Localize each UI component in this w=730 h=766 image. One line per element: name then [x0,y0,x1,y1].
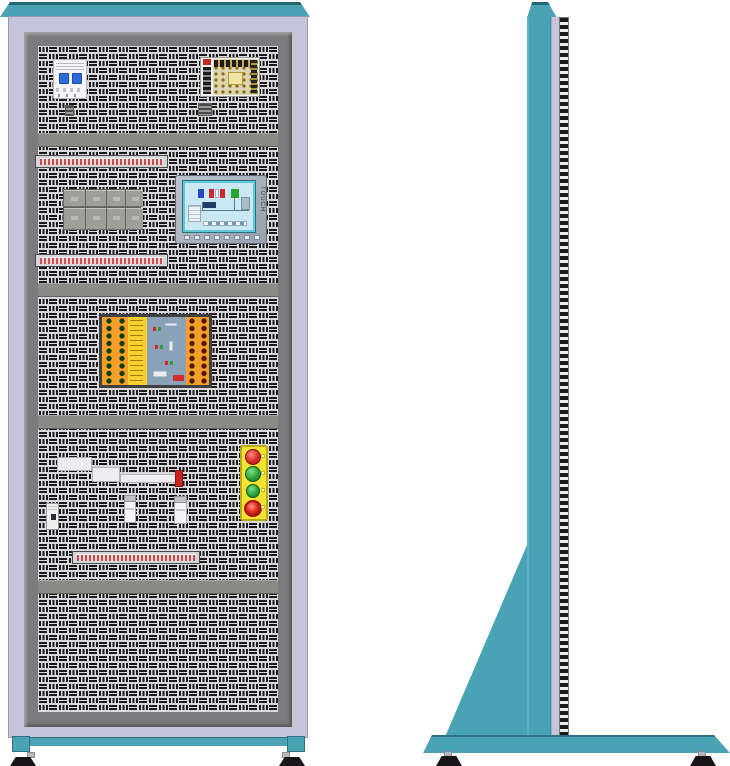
pcb-component [170,361,173,365]
side-floor-base [423,735,730,753]
pcb-component [158,327,161,331]
hmi-key [244,235,250,240]
relay-module [64,190,85,207]
leveling-foot [436,756,462,766]
psu-components [251,60,257,94]
plc-inner [102,317,209,385]
mounting-rail-4 [38,580,278,594]
side-perforated-edge [559,17,569,736]
proximity-sensor-1 [124,495,136,523]
relay-module [64,208,85,230]
psu-components [214,60,256,67]
pcb-component [165,361,168,365]
terminal-row [40,158,163,165]
hmi-screen [183,181,255,232]
breaker-terminals [58,94,82,97]
breaker-handle-icon [59,73,69,84]
leveling-foot [690,756,716,766]
terminal-strip-2 [35,254,168,267]
plc-led-column-red [186,317,209,385]
actuator-rod [120,474,179,483]
sensor-cap [124,495,136,502]
equipment-illustration: TOUCH [0,0,730,766]
front-base-strip [12,737,305,746]
mimic-block [231,189,239,198]
proximity-sensor-2 [174,496,187,524]
relay-module [126,208,143,230]
side-frame-strip [551,17,559,739]
front-base-block-right [287,736,305,752]
hmi-key [184,235,190,240]
actuator-body [57,457,92,471]
hmi-brand-label: TOUCH [259,186,265,212]
mounting-rail-3 [38,415,278,429]
terminal-row [40,257,163,264]
mounting-rail-2 [38,283,278,297]
station-notch [261,471,265,475]
plc-pcb [147,317,186,385]
plc-trainer-board [99,314,212,388]
pcb-component [155,345,158,349]
emergency-stop-button [244,500,262,517]
mimic-button-row [203,221,247,226]
psu-terminal-block [203,67,211,94]
leveling-foot [279,757,305,766]
hmi-key [194,235,200,240]
green-button [245,466,261,482]
mini-relay-core [51,514,56,520]
plc-label-strip [128,317,147,385]
hmi-key [254,235,260,240]
power-supply [200,57,260,97]
relay-module [86,190,107,207]
actuator-coupling [92,467,120,482]
station-notch [261,454,265,458]
pcb-component [153,371,167,377]
mimic-block [202,202,216,208]
hmi-function-keys [184,235,260,241]
mini-relay-markings [48,506,57,512]
sensor-band [126,508,134,510]
plc-led-column-green [102,317,128,385]
pcb-component [165,323,177,326]
pcb-component [173,375,184,381]
breaker-markings [56,88,84,92]
hmi-key [214,235,220,240]
psu-logo [203,59,211,65]
side-cabinet-column [527,17,551,739]
mounting-rail-1 [38,133,278,147]
mimic-block [198,189,204,198]
circuit-breaker [53,59,87,99]
terminal-strip-3 [72,551,200,564]
red-button [245,449,261,465]
mimic-tank [241,197,250,210]
terminal-row [77,554,195,561]
mimic-block [209,189,214,198]
mounting-clip [65,105,74,116]
breaker-handle-icon [72,73,82,84]
relay-module [107,190,124,207]
mini-relay [46,503,59,530]
green-button [246,484,260,498]
hmi-touch-panel: TOUCH [175,175,267,244]
relay-module [86,208,107,230]
mimic-panel [188,205,201,222]
leveling-foot [10,757,36,766]
relay-module [126,190,143,207]
breaker-markings [56,63,84,70]
hmi-key [204,235,210,240]
pcb-component [160,345,163,349]
relay-module [107,208,124,230]
pcb-component [169,341,173,351]
hmi-key [224,235,230,240]
side-top-cap [527,2,557,18]
station-notch [261,488,265,492]
front-base-block-left [12,736,30,752]
relay-block-group [63,189,141,230]
terminal-strip-1 [35,155,168,168]
actuator-red-tip [175,470,183,487]
sensor-cap [174,496,187,503]
station-notch [261,505,265,509]
side-support-gusset [445,545,527,737]
hmi-key [234,235,240,240]
mimic-block [215,189,219,198]
mounting-clip [198,103,212,116]
front-top-cap [0,2,310,17]
sensor-band [176,509,185,511]
pcb-component [153,327,156,331]
mimic-block [220,189,225,198]
psu-transformer [228,72,243,85]
